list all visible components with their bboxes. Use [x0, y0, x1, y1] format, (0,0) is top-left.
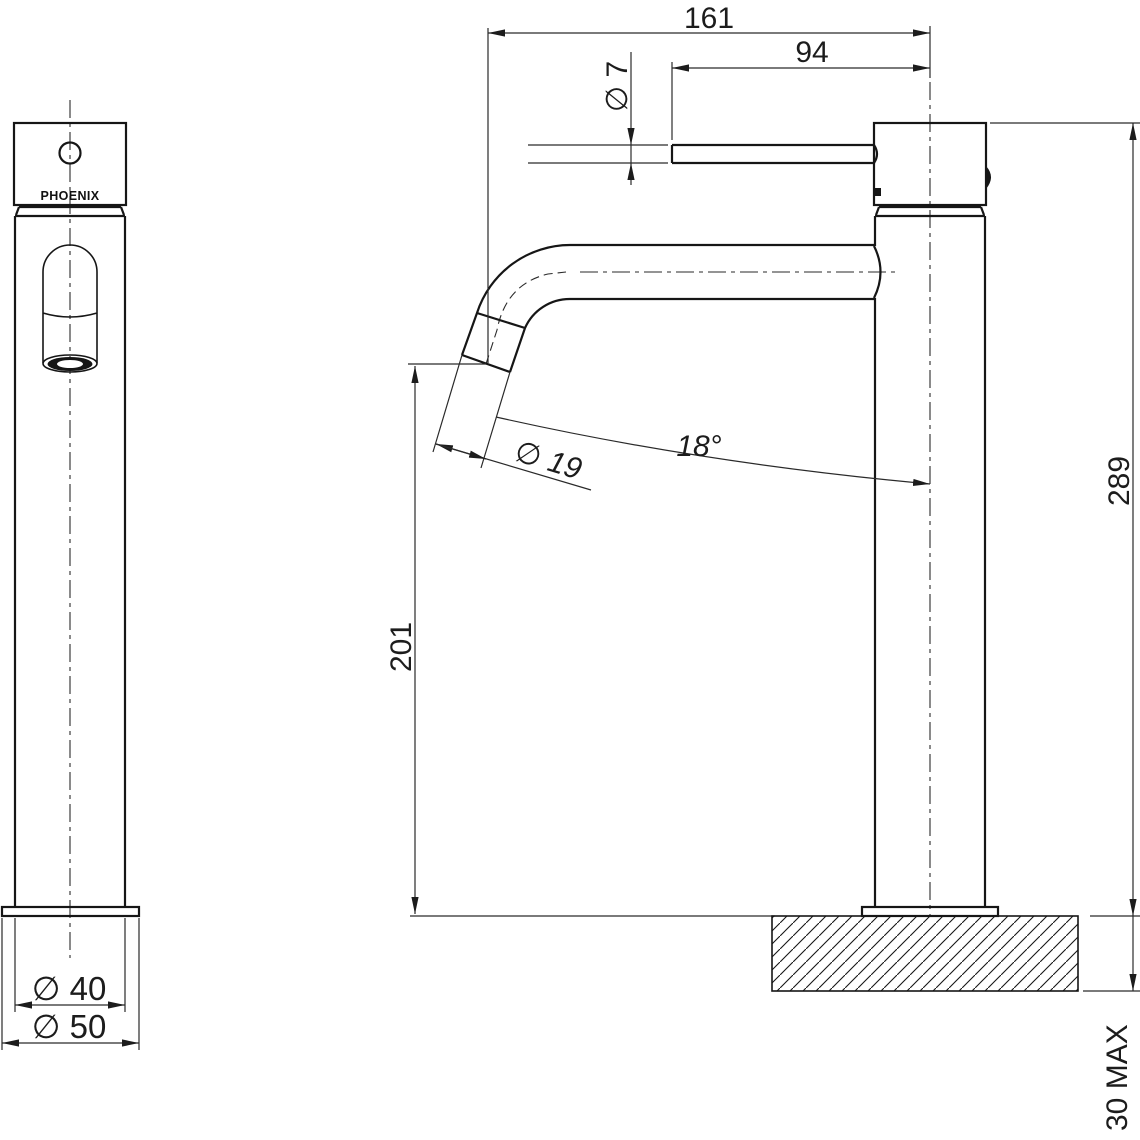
dim-spout-projection-label: 94 — [795, 36, 828, 69]
dim-handle-lever-dia-extension-lines — [528, 145, 668, 163]
side-view: 161 94 ∅ 7 ∅ 19 18° — [385, 2, 1140, 1131]
dim-deck-thickness-extension-lines — [1083, 916, 1140, 991]
dim-overall-width: 161 — [488, 2, 930, 363]
dim-spout-outlet-dia: ∅ 19 — [433, 355, 591, 490]
side-handle-lever — [672, 145, 877, 163]
dim-overall-height: 289 — [990, 123, 1140, 916]
bench-deck-section — [772, 916, 1078, 991]
front-view: PHOENIX ∅ 40 ∅ 50 — [2, 100, 139, 1050]
technical-drawing-page: PHOENIX ∅ 40 ∅ 50 — [0, 0, 1140, 1140]
spout-outlet-axis-centerline — [486, 272, 566, 364]
dim-outlet-height-label: 201 — [385, 622, 418, 672]
dim-handle-lever-dia-label: ∅ 7 — [601, 61, 634, 112]
front-aerator-hole — [57, 360, 83, 368]
side-cap-set-screw — [874, 188, 881, 196]
dim-body-dia-label: ∅ 40 — [32, 970, 107, 1007]
side-cap-indicator-bump — [986, 166, 991, 189]
brand-logo-text: PHOENIX — [40, 189, 99, 203]
dim-handle-lever-dia: ∅ 7 — [528, 52, 668, 185]
dim-spout-angle-label: 18° — [676, 430, 721, 463]
dim-base-dia-label: ∅ 50 — [32, 1008, 107, 1045]
dim-spout-outlet-dia-arrow — [436, 444, 486, 459]
dim-deck-thickness-label: 30 MAX — [1101, 1024, 1134, 1131]
dim-overall-height-label: 289 — [1103, 456, 1136, 506]
dim-deck-thickness: 30 MAX — [1083, 916, 1140, 1131]
dim-outlet-height: 201 — [385, 364, 486, 914]
faucet-dimension-drawing: PHOENIX ∅ 40 ∅ 50 — [0, 0, 1140, 1140]
side-spout-outline — [462, 245, 874, 372]
dim-spout-projection: 94 — [672, 36, 930, 140]
dim-spout-outlet-dia-extension-lines — [433, 355, 510, 468]
dim-spout-outlet-dia-label: ∅ 19 — [511, 435, 586, 486]
dim-overall-width-label: 161 — [684, 2, 734, 35]
